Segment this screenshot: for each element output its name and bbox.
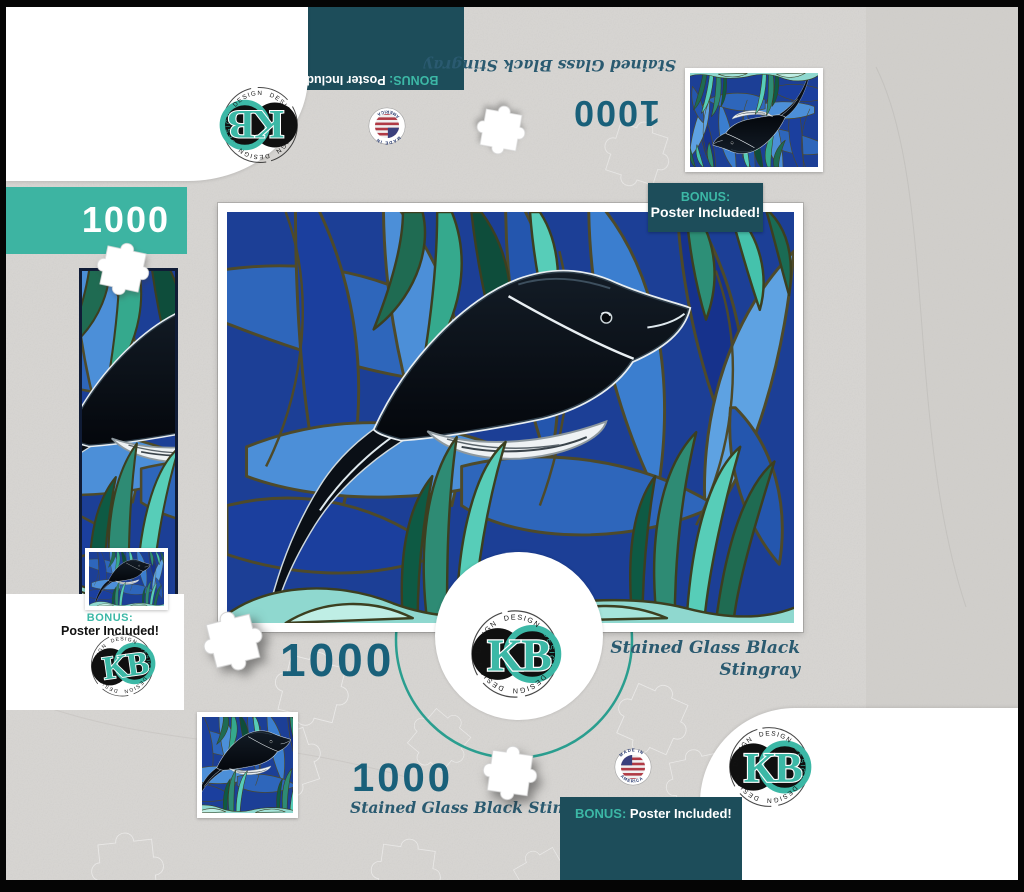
bottom-bonus-text: BONUS: Poster Included! [575,806,732,821]
main-bonus-value: Poster Included! [648,204,763,220]
kb-logo-side: DESIGN DESIGN DESIGN DESIGN DESIGN KB [79,627,167,703]
box-paper-background: BONUS: Poster Included! DESIGN DESIGN DE… [6,7,1018,880]
bonus-label: BONUS: [389,73,438,87]
svg-text:KB: KB [744,746,802,792]
side-piece-count: 1000 [82,199,170,241]
side-strip-thumbnail [85,548,168,610]
kb-logo-bottom-right: DESIGN DESIGN DESIGN DESIGN DESIGN KB [720,725,820,809]
side-bonus-card: BONUS: Poster Included! DESIGN DESIGN DE… [6,594,184,710]
top-right-thumbnail [685,68,823,172]
logo-initials: KB [229,102,284,147]
made-in-america-badge-top: MADE IN AMERICA [368,107,406,145]
main-bonus-badge: BONUS: Poster Included! [648,183,763,232]
top-flap-piece-count: 1000 [558,92,674,134]
kb-logo: DESIGN DESIGN DESIGN DESIGN DESIGN KB [211,85,307,165]
puzzle-piece-icon-left [89,235,158,304]
bottom-bonus-bar: BONUS: Poster Included! [560,797,742,880]
side-count-banner: 1000 [6,187,187,254]
bottom-piece-count: 1000 [352,756,453,801]
svg-text:KB: KB [100,645,151,687]
top-left-card: DESIGN DESIGN DESIGN DESIGN DESIGN KB [6,7,308,181]
puzzle-piece-icon-top [470,99,533,162]
main-title: Stained Glass Black Stingray [610,637,800,681]
puzzle-piece-icon-bottom-center [476,739,544,807]
svg-text:KB: KB [487,629,551,680]
main-title-line2: Stingray [610,659,800,681]
main-bonus-label: BONUS: [648,190,763,204]
side-bonus-label: BONUS: [36,612,184,624]
bottom-flap-piece-count-large: 1000 [280,633,394,687]
bottom-thumbnail [197,712,298,818]
puzzle-box-dieline: BONUS: Poster Included! DESIGN DESIGN DE… [0,0,1024,892]
top-flap-title: Stained Glass Black Stingray [464,52,676,78]
main-title-line1: Stained Glass Black [610,637,800,659]
kb-logo-bottom-center: DESIGN DESIGN DESIGN DESIGN DESIGN KB [460,608,572,700]
made-in-america-badge-bottom: MADE IN AMERICA [614,748,652,786]
